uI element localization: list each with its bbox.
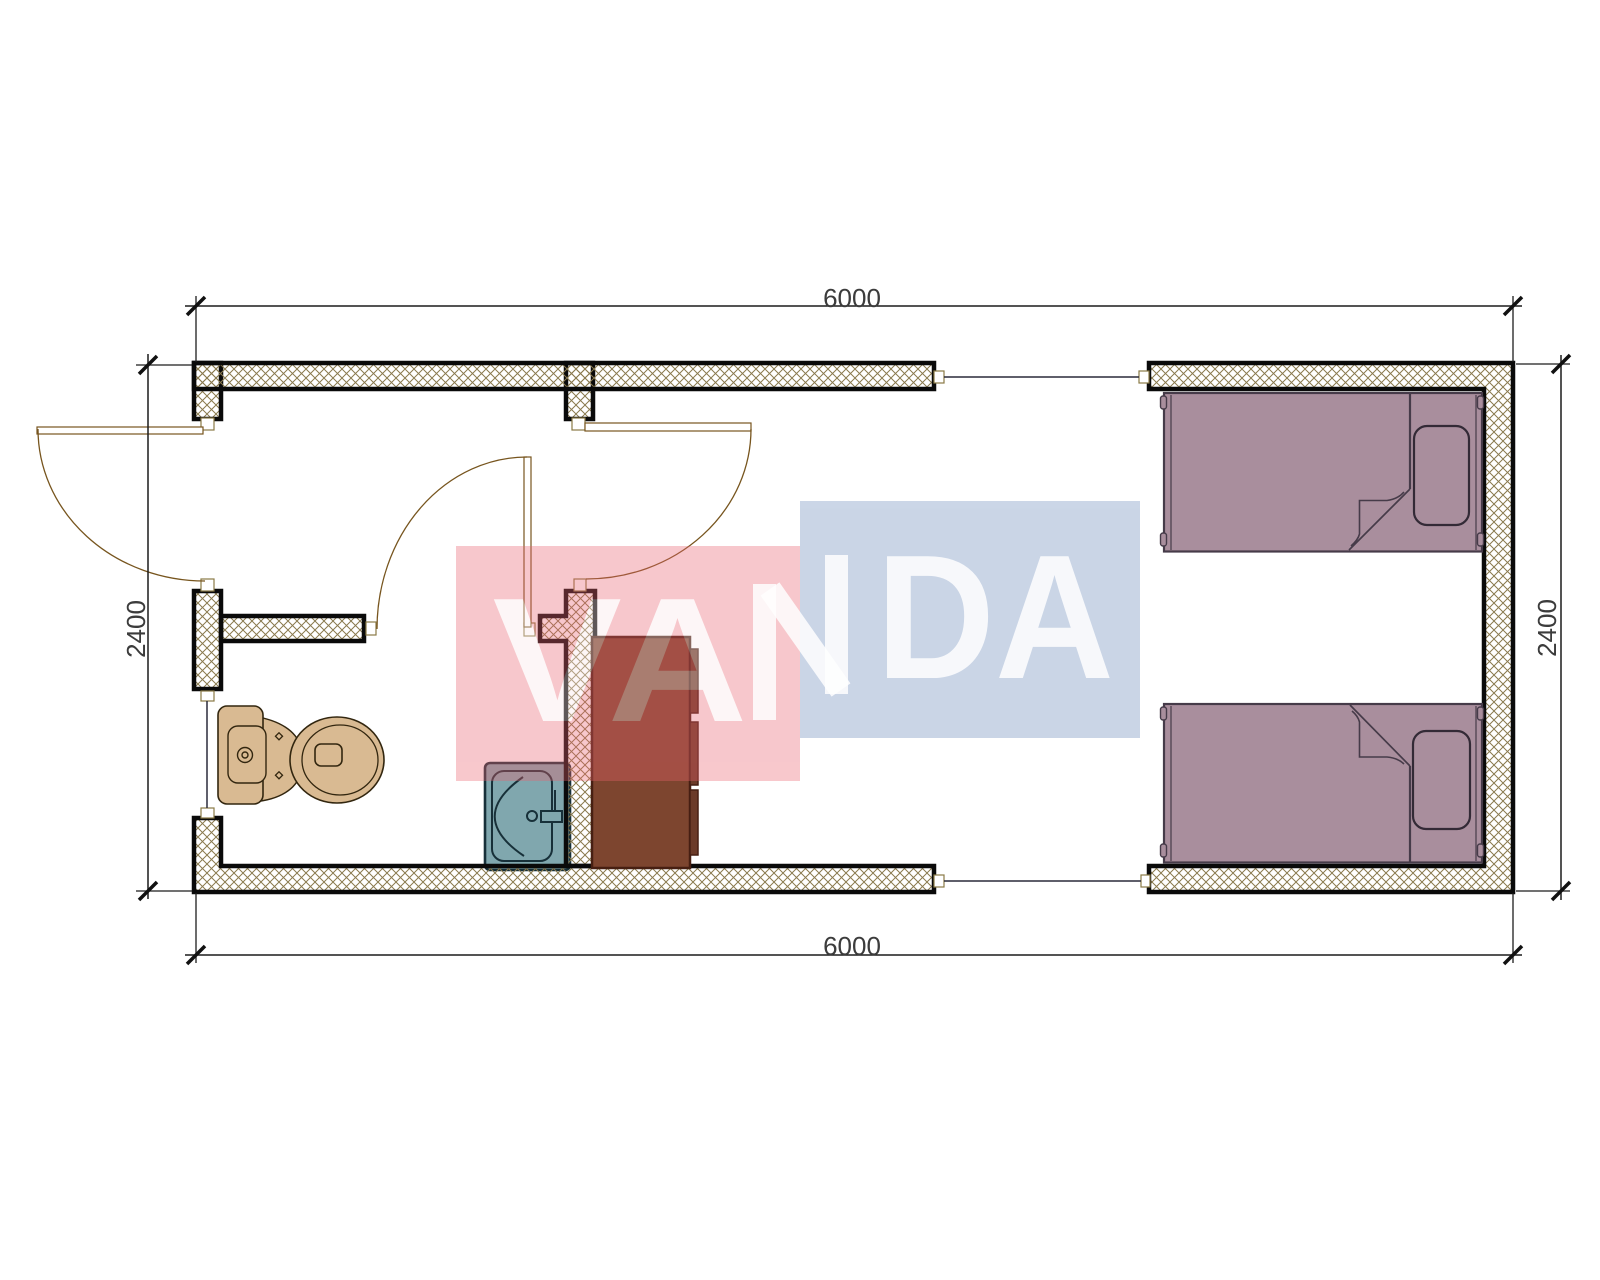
svg-text:2400: 2400 [121, 600, 151, 658]
svg-text:6000: 6000 [823, 931, 881, 961]
svg-text:6000: 6000 [823, 283, 881, 313]
svg-text:DA: DA [876, 518, 1114, 716]
svg-text:VA: VA [493, 561, 748, 759]
svg-text:2400: 2400 [1532, 599, 1562, 657]
